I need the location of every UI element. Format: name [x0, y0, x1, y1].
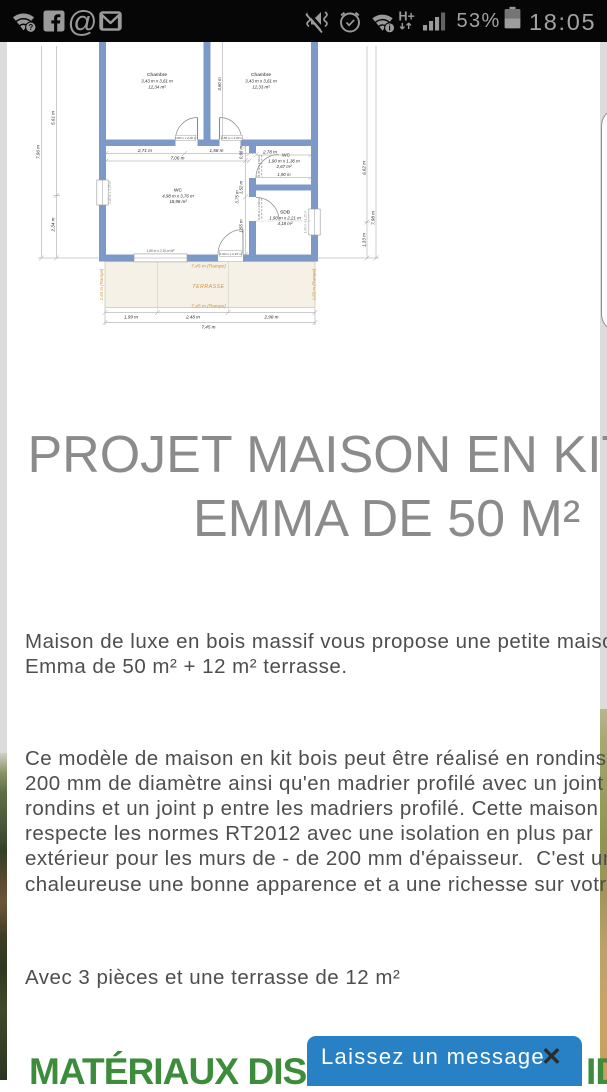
svg-text:12,33 m²: 12,33 m²	[252, 85, 270, 90]
svg-text:5,61 m: 5,61 m	[51, 111, 56, 125]
svg-text:7,96 m: 7,96 m	[36, 145, 41, 159]
svg-text:2,98 m: 2,98 m	[263, 315, 278, 320]
svg-text:1,40 m x 1,25 m: 1,40 m x 1,25 m	[108, 181, 112, 204]
svg-text:1,40 m x 1,25 m: 1,40 m x 1,25 m	[304, 210, 308, 233]
svg-text:0,80 m x 2,00 m: 0,80 m x 2,00 m	[221, 136, 243, 140]
svg-text:0,70 m x 2,00 m: 0,70 m x 2,00 m	[257, 198, 261, 220]
svg-text:4,98 m x 3,76 m: 4,98 m x 3,76 m	[162, 194, 194, 199]
svg-text:7,45 m (Rampe): 7,45 m (Rampe)	[191, 304, 226, 310]
svg-text:1,90 m x 1,36 m: 1,90 m x 1,36 m	[268, 159, 300, 164]
svg-text:?: ?	[28, 23, 33, 32]
svg-text:3,43 m x 3,61 m: 3,43 m x 3,61 m	[245, 79, 277, 84]
svg-text:0,68 m: 0,68 m	[239, 146, 244, 160]
svg-text:Chambre: Chambre	[147, 72, 167, 78]
svg-text:@: @	[68, 6, 98, 39]
svg-text:12,34 m²: 12,34 m²	[148, 85, 166, 90]
svg-text:4,18 m²: 4,18 m²	[278, 221, 293, 226]
svg-text:H+: H+	[399, 10, 415, 24]
svg-text:53%: 53%	[457, 10, 501, 32]
svg-text:1,55 m: 1,55 m	[239, 219, 244, 233]
svg-text:1,99 m: 1,99 m	[124, 315, 138, 320]
svg-text:1,33 m: 1,33 m	[362, 233, 367, 247]
svg-text:2,67 m²: 2,67 m²	[276, 164, 292, 169]
svg-text:18,98 m²: 18,98 m²	[169, 199, 187, 204]
svg-text:7,06 m: 7,06 m	[170, 156, 184, 161]
svg-text:i: i	[389, 24, 391, 33]
svg-text:3,43 m x 3,61 m: 3,43 m x 3,61 m	[141, 79, 173, 84]
svg-text:7,98 m: 7,98 m	[371, 211, 376, 225]
svg-text:1,65 m (Rampe): 1,65 m (Rampe)	[99, 268, 104, 300]
svg-text:1,65 m (Rampe): 1,65 m (Rampe)	[312, 268, 317, 300]
svg-text:2,71 m: 2,71 m	[137, 148, 152, 153]
svg-text:2,48 m: 2,48 m	[185, 315, 200, 320]
svg-text:3,60 m: 3,60 m	[217, 77, 222, 91]
svg-text:0,90 m x 2,15 m: 0,90 m x 2,15 m	[219, 252, 242, 256]
svg-text:7,45 m (Rampe): 7,45 m (Rampe)	[191, 264, 226, 270]
svg-text:0,80 m x 2,00 m: 0,80 m x 2,00 m	[175, 136, 197, 140]
svg-text:7,45 m: 7,45 m	[201, 325, 215, 330]
svg-text:TERRASSE: TERRASSE	[192, 284, 224, 290]
svg-text:1,58 m: 1,58 m	[209, 148, 223, 153]
svg-text:2,78 m: 2,78 m	[262, 150, 277, 155]
svg-text:Chambre: Chambre	[251, 72, 271, 78]
svg-text:0,70 m x 2,00 m: 0,70 m x 2,00 m	[257, 155, 261, 177]
svg-text:2,34 m: 2,34 m	[51, 217, 56, 232]
svg-text:18:05: 18:05	[529, 9, 596, 35]
svg-text:6,62 m: 6,62 m	[362, 161, 367, 175]
svg-text:1,90 m: 1,90 m	[277, 172, 291, 177]
svg-text:3,75 m: 3,75 m	[235, 190, 240, 204]
svg-text:1,90 m x 2,21 m: 1,90 m x 2,21 m	[269, 216, 301, 221]
svg-text:1,80 m x 2,15 m NF: 1,80 m x 2,15 m NF	[147, 249, 176, 253]
